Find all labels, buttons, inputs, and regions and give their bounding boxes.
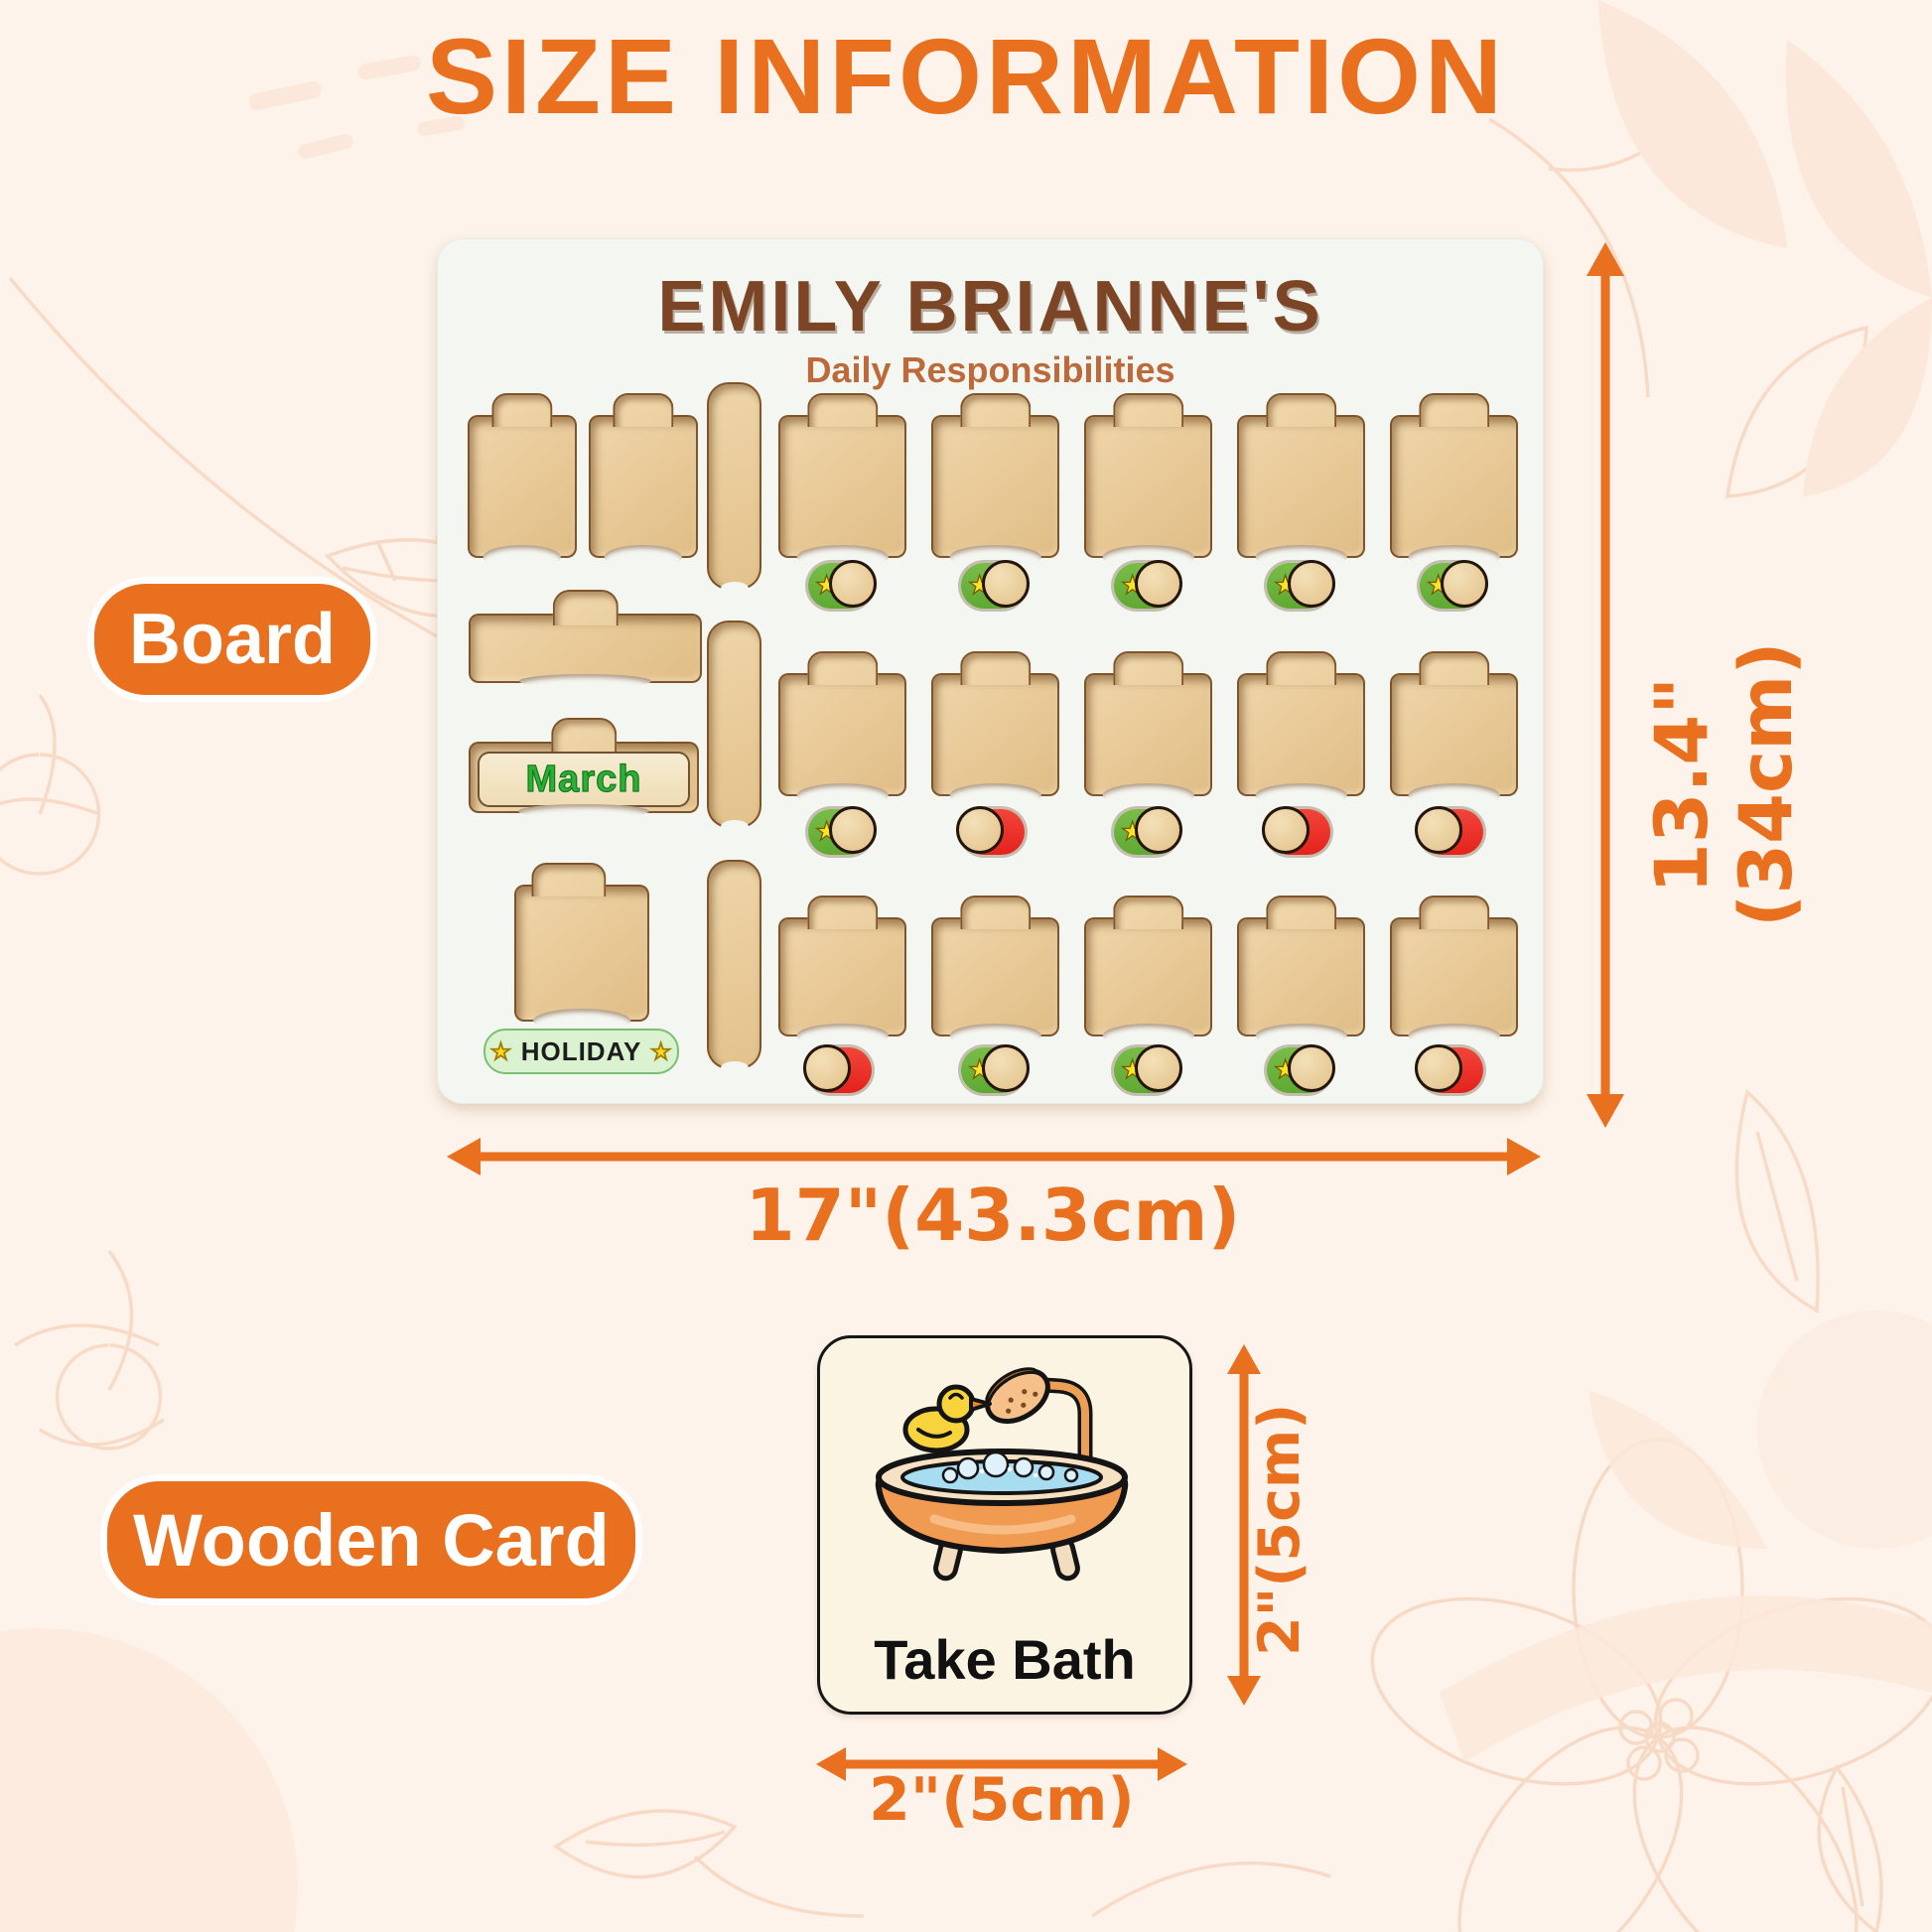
status-toggle-on — [808, 809, 872, 855]
chore-card-slot — [778, 673, 906, 796]
size-information-page: SIZE INFORMATION Board EMILY BRIANNE'S D… — [0, 0, 1932, 1932]
toggle-knob — [1415, 1044, 1462, 1092]
rubber-duck-icon — [905, 1387, 990, 1450]
status-toggle-on — [1114, 1047, 1177, 1093]
chore-card-slot — [1084, 415, 1212, 558]
toggle-knob — [1135, 806, 1182, 854]
chore-card-slot — [778, 917, 906, 1036]
board-width-dimension: 17"(43.3cm) — [693, 1173, 1293, 1257]
status-toggle-off — [961, 809, 1025, 855]
chore-grid — [437, 238, 1544, 1104]
status-toggle-on — [1267, 1047, 1330, 1093]
chore-card-slot — [1390, 673, 1518, 796]
chore-card-slot — [1237, 415, 1365, 558]
bathtub-illustration — [851, 1352, 1159, 1594]
card-width-dimension: 2"(5cm) — [812, 1765, 1191, 1835]
status-toggle-on — [1420, 563, 1483, 609]
status-toggle-on — [808, 563, 872, 609]
toggle-knob — [1288, 560, 1335, 608]
chore-card-slot — [931, 673, 1059, 796]
toggle-knob — [982, 560, 1030, 608]
chore-card-slot — [1390, 415, 1518, 558]
status-toggle-off — [1420, 809, 1483, 855]
board-section-label: Board — [94, 584, 370, 695]
board-section-label-text: Board — [129, 599, 336, 680]
toggle-knob — [1441, 560, 1488, 608]
page-title: SIZE INFORMATION — [0, 14, 1932, 138]
toggle-knob — [829, 560, 877, 608]
task-card-caption: Take Bath — [820, 1627, 1189, 1692]
status-toggle-off — [1267, 809, 1330, 855]
chore-card-slot — [931, 917, 1059, 1036]
wooden-card-section-label: Wooden Card — [107, 1481, 635, 1598]
chore-card-slot — [1237, 917, 1365, 1036]
status-toggle-on — [961, 563, 1025, 609]
toggle-knob — [1135, 560, 1182, 608]
chore-card-slot — [1084, 917, 1212, 1036]
toggle-knob — [982, 1044, 1030, 1092]
toggle-knob — [829, 806, 877, 854]
status-toggle-off — [808, 1047, 872, 1093]
chore-board: EMILY BRIANNE'S Daily Responsibilities M… — [437, 238, 1544, 1104]
toggle-knob — [1288, 1044, 1335, 1092]
chore-card-slot — [1084, 673, 1212, 796]
board-height-dimension: 13.4"(34cm) — [1640, 534, 1735, 1035]
status-toggle-off — [1420, 1047, 1483, 1093]
wooden-task-card: Take Bath — [817, 1335, 1192, 1715]
chore-card-slot — [1390, 917, 1518, 1036]
toggle-knob — [803, 1044, 851, 1092]
chore-card-slot — [931, 415, 1059, 558]
chore-card-slot — [778, 415, 906, 558]
status-toggle-on — [1114, 809, 1177, 855]
status-toggle-on — [1114, 563, 1177, 609]
status-toggle-on — [1267, 563, 1330, 609]
chore-card-slot — [1237, 673, 1365, 796]
toggle-knob — [956, 806, 1004, 854]
toggle-knob — [1262, 806, 1310, 854]
board-height-arrow — [1583, 238, 1628, 1132]
wooden-card-section-label-text: Wooden Card — [133, 1498, 610, 1583]
toggle-knob — [1135, 1044, 1182, 1092]
card-height-dimension: 2"(5cm) — [1247, 1378, 1330, 1681]
shower-head-icon — [978, 1359, 1057, 1432]
toggle-knob — [1415, 806, 1462, 854]
status-toggle-on — [961, 1047, 1025, 1093]
